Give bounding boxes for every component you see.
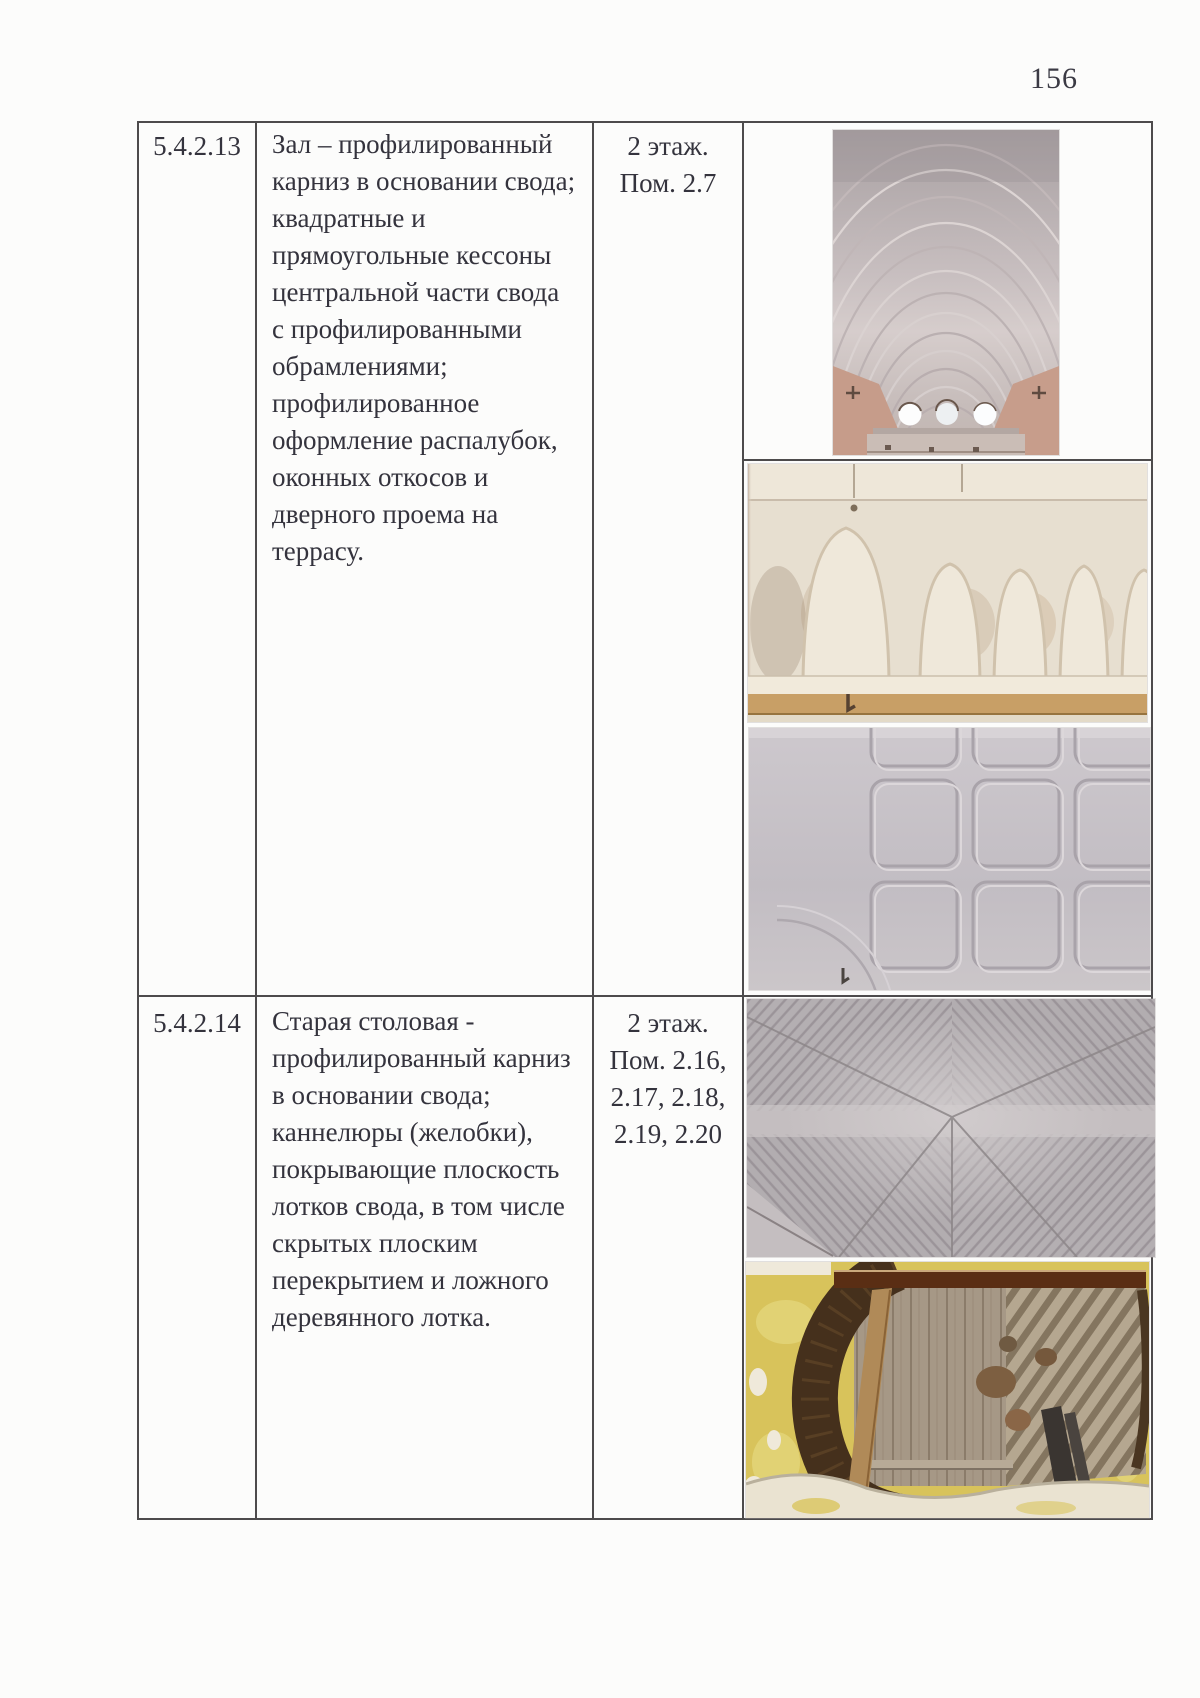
table-border-top [137,121,1153,123]
row-description: Зал – профилированныйкарниз в основании … [259,126,602,570]
photo-exposed-ceiling-structure [746,1262,1149,1518]
row-id: 5.4.2.14 [139,1005,255,1042]
row-location: 2 этаж.Пом. 2.7 [594,128,742,202]
table-divider-col1 [255,121,257,1520]
document-page: 156 5.4.2.13 Зал – профилированныйкарниз… [0,0,1200,1698]
photo-cell-divider [744,459,1151,461]
table-row-divider [137,995,1153,997]
photo-vaulted-hall-ceiling [833,130,1059,455]
registry-table: 5.4.2.13 Зал – профилированныйкарниз в о… [137,121,1153,1520]
table-border-right [1151,121,1153,1520]
page-number: 156 [1030,62,1078,96]
photo-coffered-ceiling-grid [749,728,1150,990]
table-divider-col3 [742,121,744,1520]
photo-vault-lunettes [748,464,1147,722]
row-id: 5.4.2.13 [139,128,255,165]
row-description: Старая столовая -профилированный карнизв… [259,1003,602,1336]
table-border-left [137,121,139,1520]
row-location: 2 этаж.Пом. 2.16,2.17, 2.18,2.19, 2.20 [594,1005,742,1153]
photo-fluted-vault [747,999,1155,1257]
table-border-bottom [137,1518,1153,1520]
